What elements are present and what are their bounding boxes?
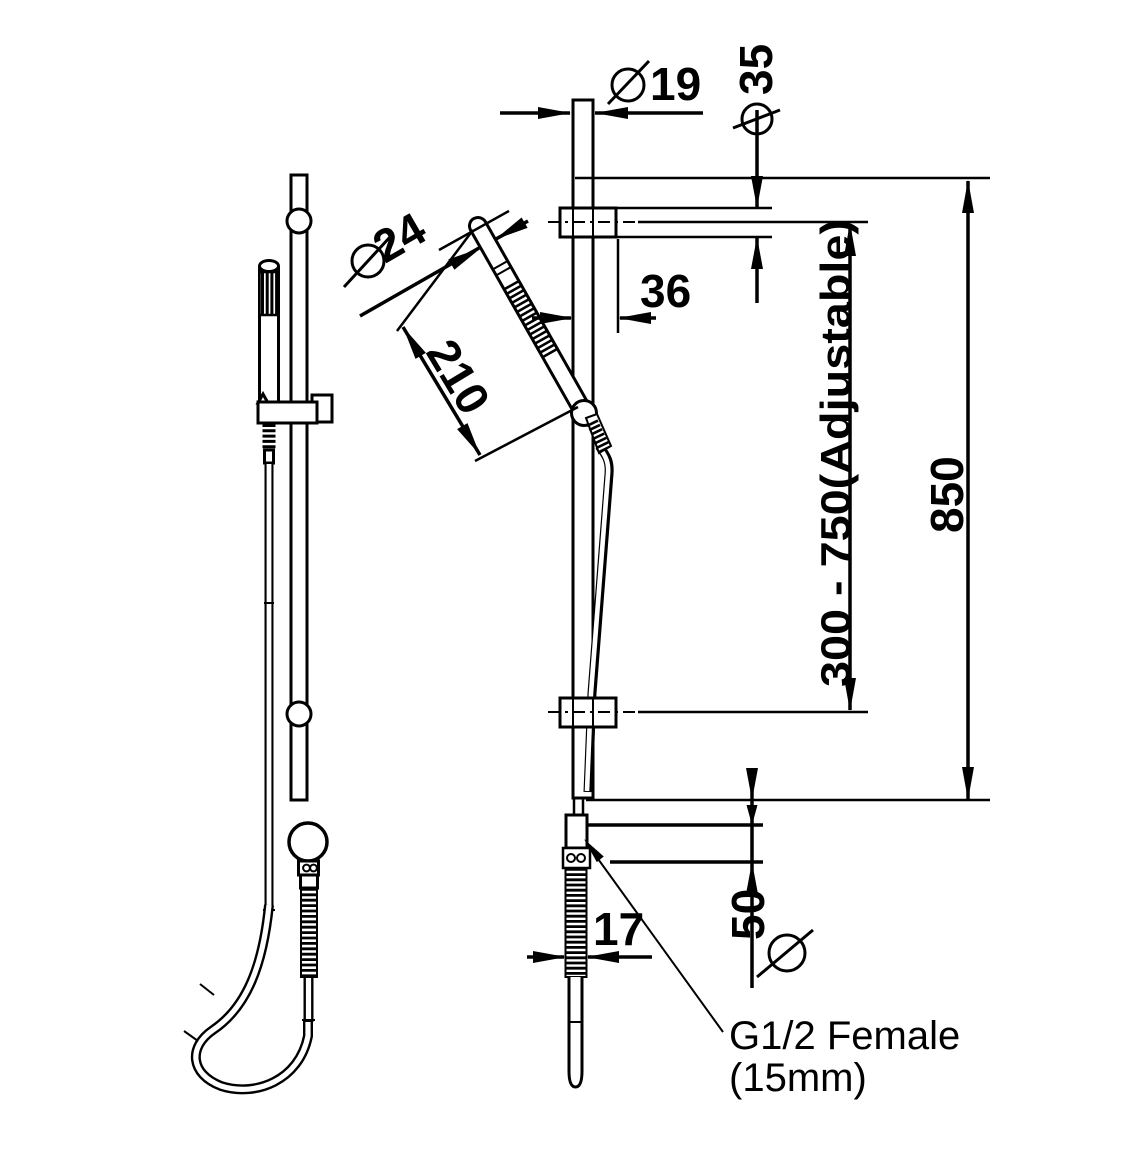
dimension-text: 35 <box>730 44 782 95</box>
dimension-arrow <box>495 218 528 240</box>
top-bracket-knob <box>287 209 311 233</box>
front-view <box>184 175 332 1089</box>
hose-collar <box>265 450 274 463</box>
dimension-arrow <box>962 767 974 800</box>
dim-overall-length: 850 <box>575 178 990 800</box>
hose-joint-tick <box>200 984 214 995</box>
wall-outlet-flange <box>289 823 327 861</box>
bottom-bracket-knob <box>287 702 311 726</box>
drawing-canvas: 19 35 24 210 36 <box>0 0 1146 1152</box>
dimension-text: 210 <box>416 330 500 423</box>
holder-body <box>258 402 317 423</box>
outlet-collar <box>301 875 318 888</box>
dimension-arrow <box>751 176 763 208</box>
dimension-arrow <box>747 805 758 825</box>
hand-shower-cap <box>260 261 279 272</box>
dimension-arrow <box>457 423 480 455</box>
dimension-text: 850 <box>921 456 973 533</box>
dimension-text: 50 <box>722 889 774 940</box>
hose-loop-outer <box>196 905 308 1089</box>
hose-loop-inner <box>196 905 308 1089</box>
dimension-arrow <box>962 180 974 213</box>
inlet-tube <box>569 977 582 1087</box>
dimension-arrow <box>538 107 571 119</box>
dimension-text: 24 <box>364 202 435 273</box>
hose-joint-tick <box>184 1031 198 1041</box>
dim-hose-diameter: 17 <box>527 903 652 963</box>
dim-rail-to-wall: 36 <box>532 239 691 333</box>
dimension-arrow <box>746 768 758 800</box>
dimension-arrow <box>448 248 481 270</box>
dimension-arrow <box>595 107 628 119</box>
extension-line <box>475 407 578 461</box>
dimension-arrow <box>751 237 763 269</box>
dimension-text: 19 <box>650 58 701 110</box>
dimension-text: 36 <box>640 265 691 317</box>
dim-rail-diameter: 19 <box>500 58 703 119</box>
note-text: G1/2 Female <box>729 1014 960 1058</box>
note-text: (15mm) <box>729 1056 867 1100</box>
dimension-arrow <box>540 312 573 324</box>
outlet-nut <box>299 861 319 875</box>
dimension-text: 300 - 750(Adjustable) <box>812 219 859 687</box>
dimension-arrow <box>533 951 566 963</box>
technical-drawing-shower-rail: 19 35 24 210 36 <box>0 0 1146 1152</box>
inlet-connector <box>566 815 587 848</box>
note-inlet-connection: G1/2 Female (15mm) <box>584 839 960 1100</box>
